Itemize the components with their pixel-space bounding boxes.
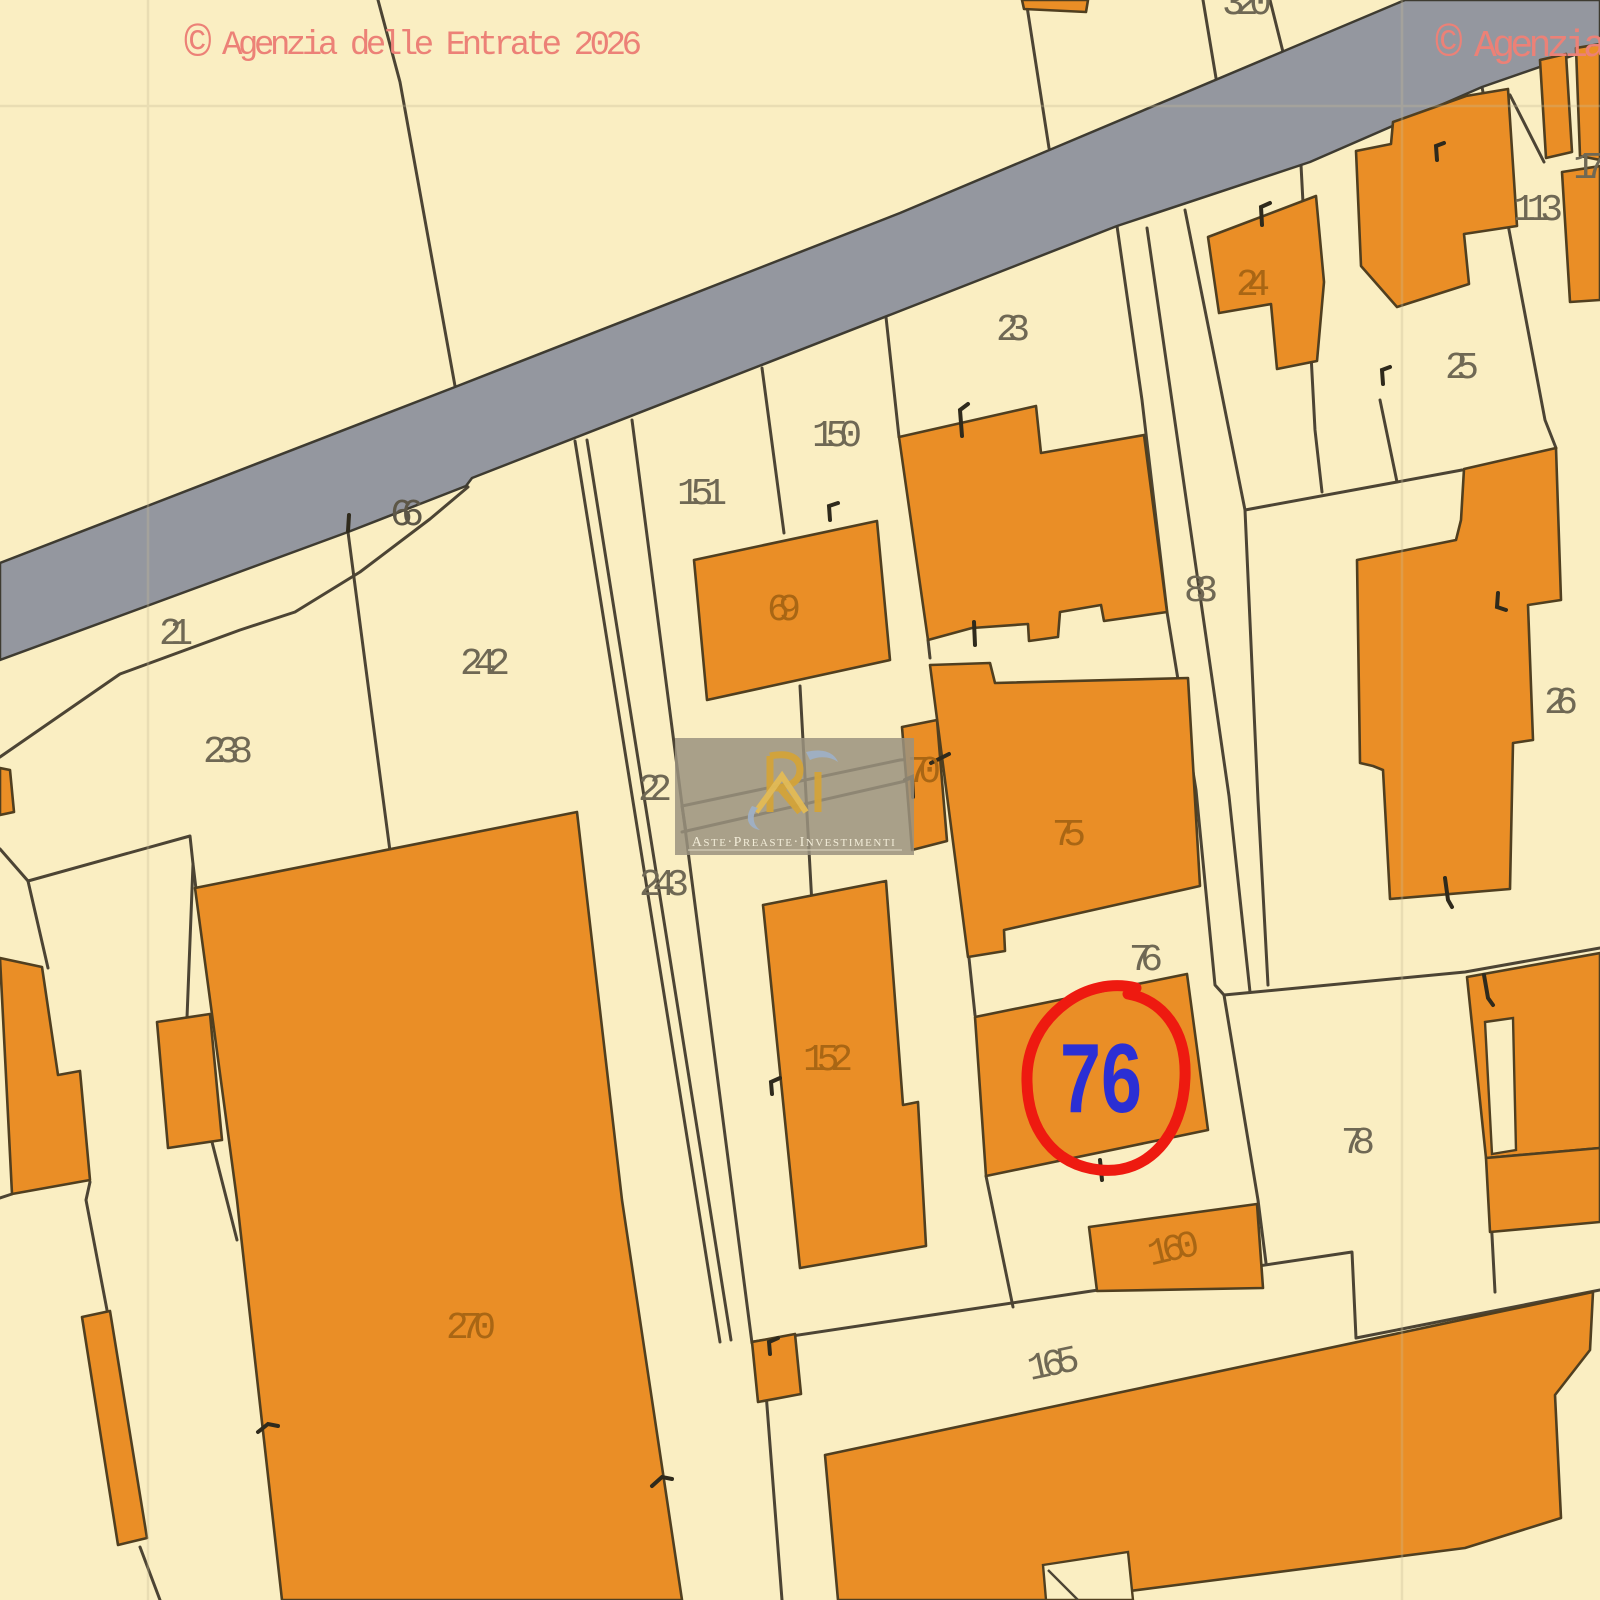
svg-text:17: 17 [1573, 147, 1600, 190]
svg-text:©: © [1435, 19, 1463, 71]
svg-text:76: 76 [1060, 1023, 1142, 1133]
svg-text:270: 270 [446, 1307, 496, 1350]
svg-text:83: 83 [1184, 570, 1218, 613]
svg-text:78: 78 [1341, 1122, 1375, 1165]
svg-text:76: 76 [1129, 939, 1163, 982]
svg-text:21: 21 [159, 613, 193, 656]
svg-text:152: 152 [803, 1039, 853, 1082]
svg-text:75: 75 [1052, 814, 1086, 857]
svg-text:23: 23 [996, 309, 1030, 352]
svg-text:150: 150 [812, 415, 862, 458]
svg-text:243: 243 [639, 864, 689, 907]
svg-text:320: 320 [1222, 0, 1272, 26]
svg-text:242: 242 [460, 643, 510, 686]
svg-text:©: © [184, 19, 212, 71]
svg-text:ASTE·PREASTE·INVESTIMENTI: ASTE·PREASTE·INVESTIMENTI [692, 835, 896, 850]
svg-text:66: 66 [390, 494, 424, 537]
svg-text:25: 25 [1445, 347, 1479, 390]
svg-text:Agenzia delle Entrate 2026: Agenzia delle Entrate 2026 [222, 27, 642, 65]
svg-text:238: 238 [203, 731, 253, 774]
svg-text:69: 69 [767, 589, 801, 632]
svg-text:24: 24 [1236, 264, 1270, 307]
svg-text:26: 26 [1544, 682, 1578, 725]
svg-text:Agenzia: Agenzia [1474, 25, 1600, 68]
svg-text:113: 113 [1513, 189, 1563, 232]
svg-text:22: 22 [638, 769, 672, 812]
svg-text:151: 151 [677, 473, 727, 516]
